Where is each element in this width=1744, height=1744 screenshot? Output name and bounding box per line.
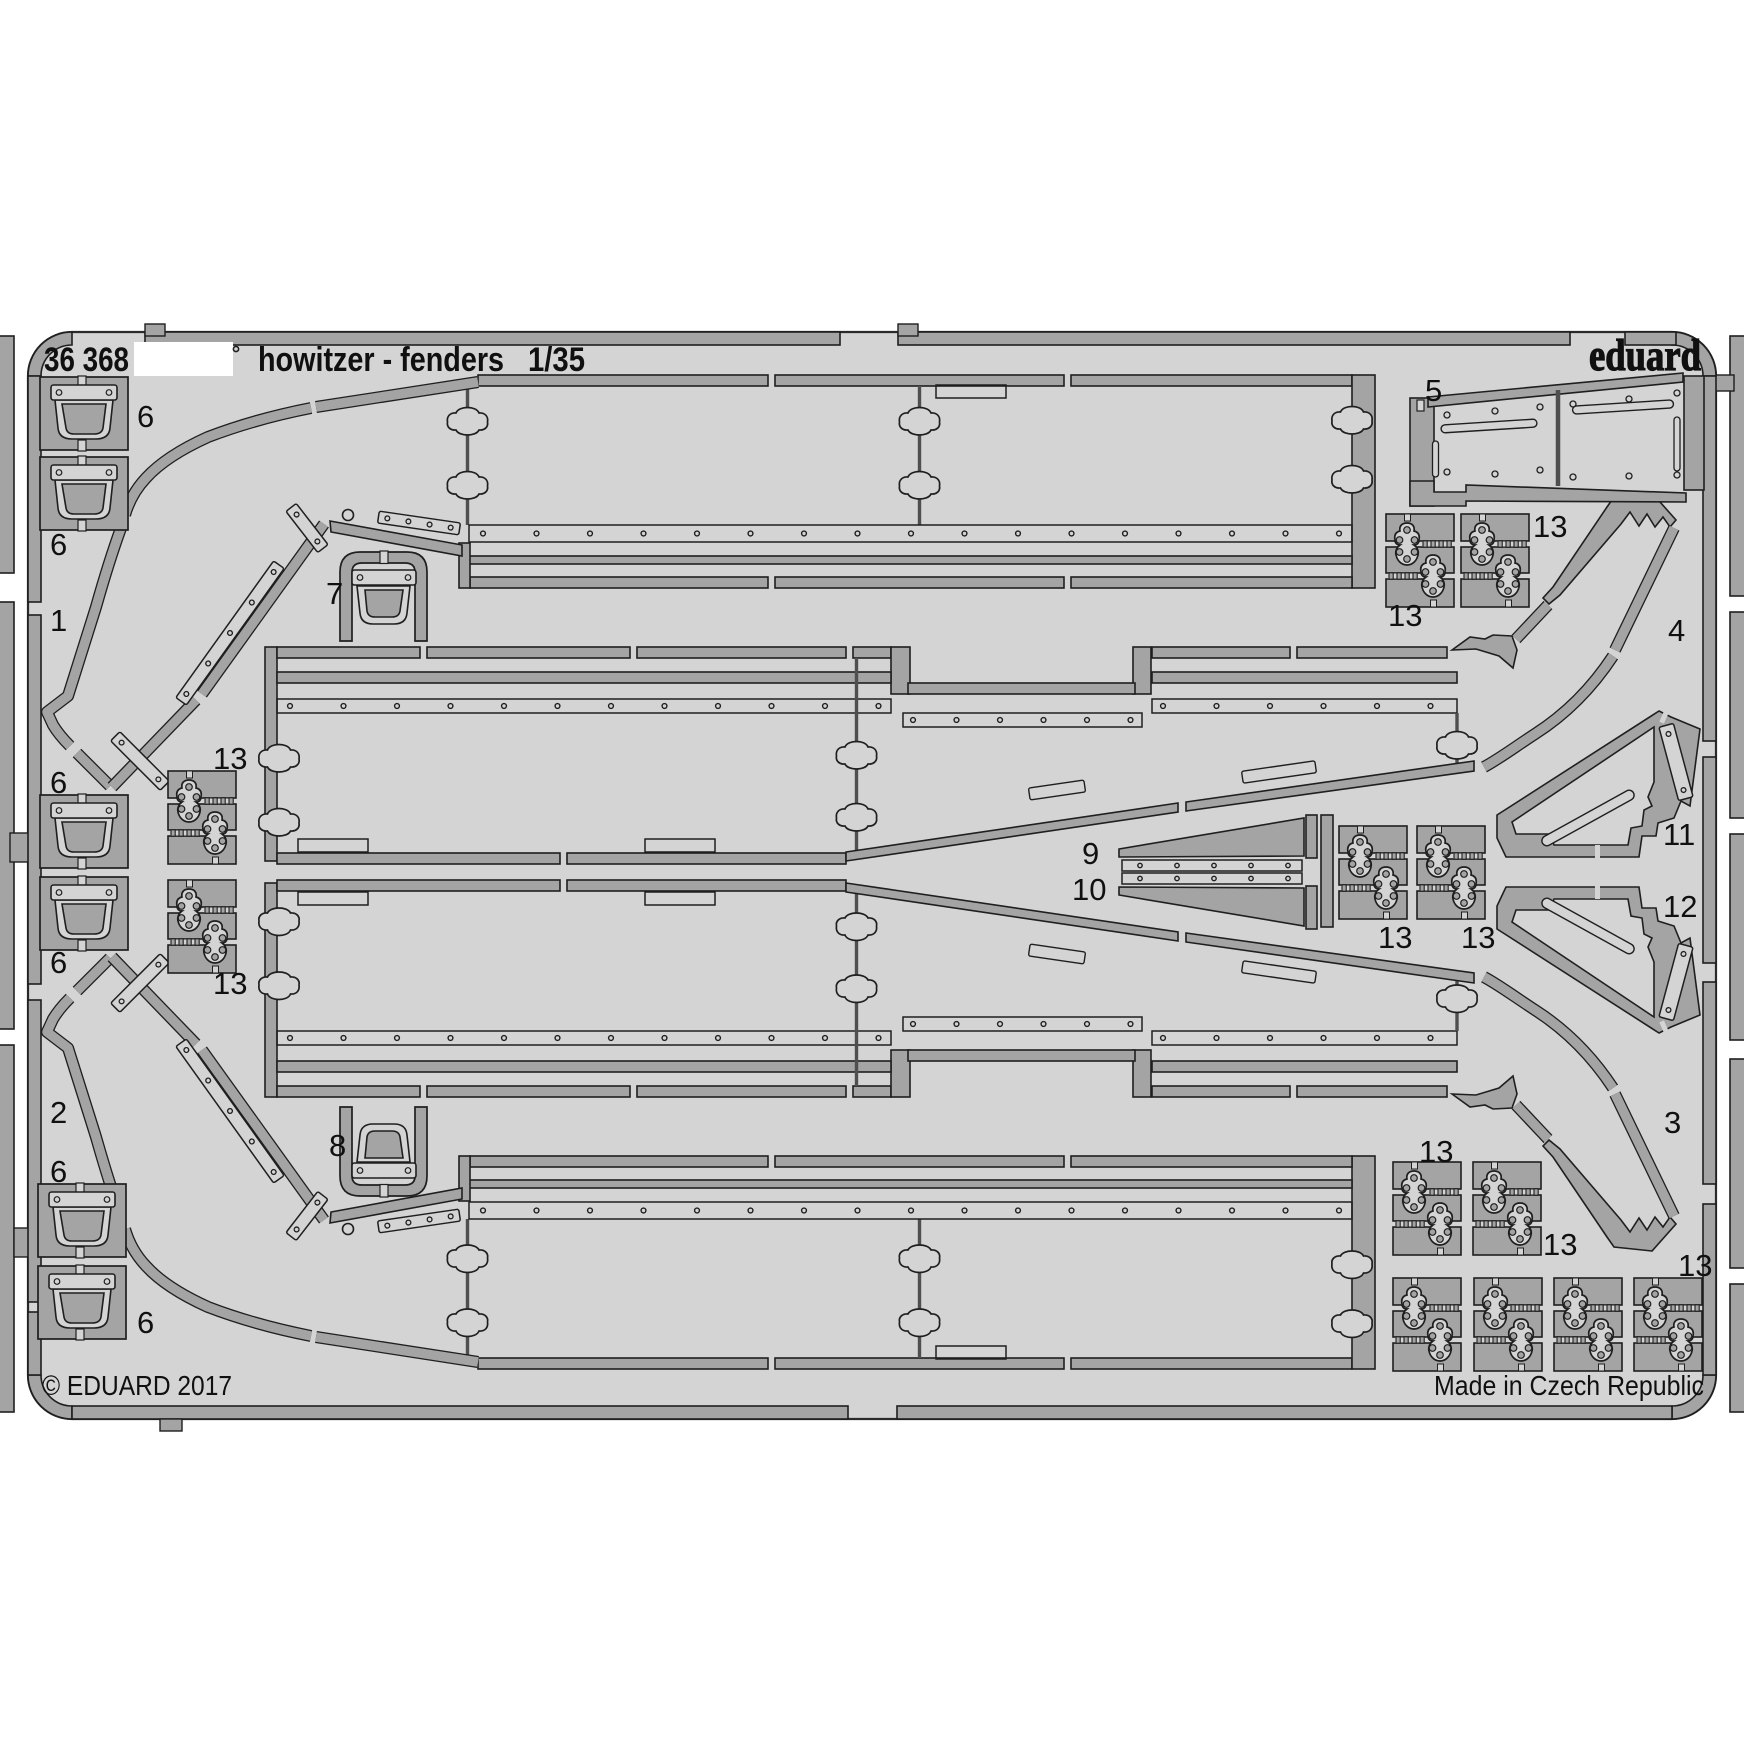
svg-text:8: 8: [329, 1128, 346, 1163]
svg-text:12: 12: [1663, 889, 1697, 924]
svg-text:13: 13: [1543, 1227, 1577, 1262]
svg-text:13: 13: [1533, 509, 1567, 544]
svg-text:3: 3: [1664, 1105, 1681, 1140]
svg-text:10: 10: [1072, 872, 1106, 907]
svg-text:6: 6: [50, 765, 67, 800]
svg-text:6: 6: [50, 945, 67, 980]
svg-text:6: 6: [50, 1154, 67, 1189]
svg-text:36 368: 36 368: [44, 341, 129, 379]
svg-text:13: 13: [1378, 920, 1412, 955]
svg-text:13: 13: [1388, 598, 1422, 633]
svg-text:13: 13: [1678, 1248, 1712, 1283]
svg-text:4: 4: [1668, 613, 1685, 648]
svg-text:6: 6: [50, 527, 67, 562]
svg-text:13: 13: [1461, 920, 1495, 955]
svg-text:Made in Czech Republic: Made in Czech Republic: [1434, 1370, 1704, 1401]
svg-text:13: 13: [1419, 1134, 1453, 1169]
svg-text:1: 1: [50, 603, 67, 638]
svg-text:6: 6: [137, 1305, 154, 1340]
svg-text:eduard: eduard: [1589, 331, 1701, 380]
svg-text:2: 2: [50, 1095, 67, 1130]
svg-text:6: 6: [137, 399, 154, 434]
svg-text:5: 5: [1425, 373, 1442, 408]
svg-text:11: 11: [1663, 817, 1695, 852]
svg-text:9: 9: [1082, 836, 1099, 871]
svg-text:13: 13: [213, 966, 247, 1001]
svg-text:1/35: 1/35: [528, 341, 585, 379]
svg-text:howitzer - fenders: howitzer - fenders: [258, 341, 504, 379]
svg-text:13: 13: [213, 741, 247, 776]
svg-text:7: 7: [326, 576, 343, 611]
svg-text:© EDUARD 2017: © EDUARD 2017: [42, 1370, 232, 1401]
